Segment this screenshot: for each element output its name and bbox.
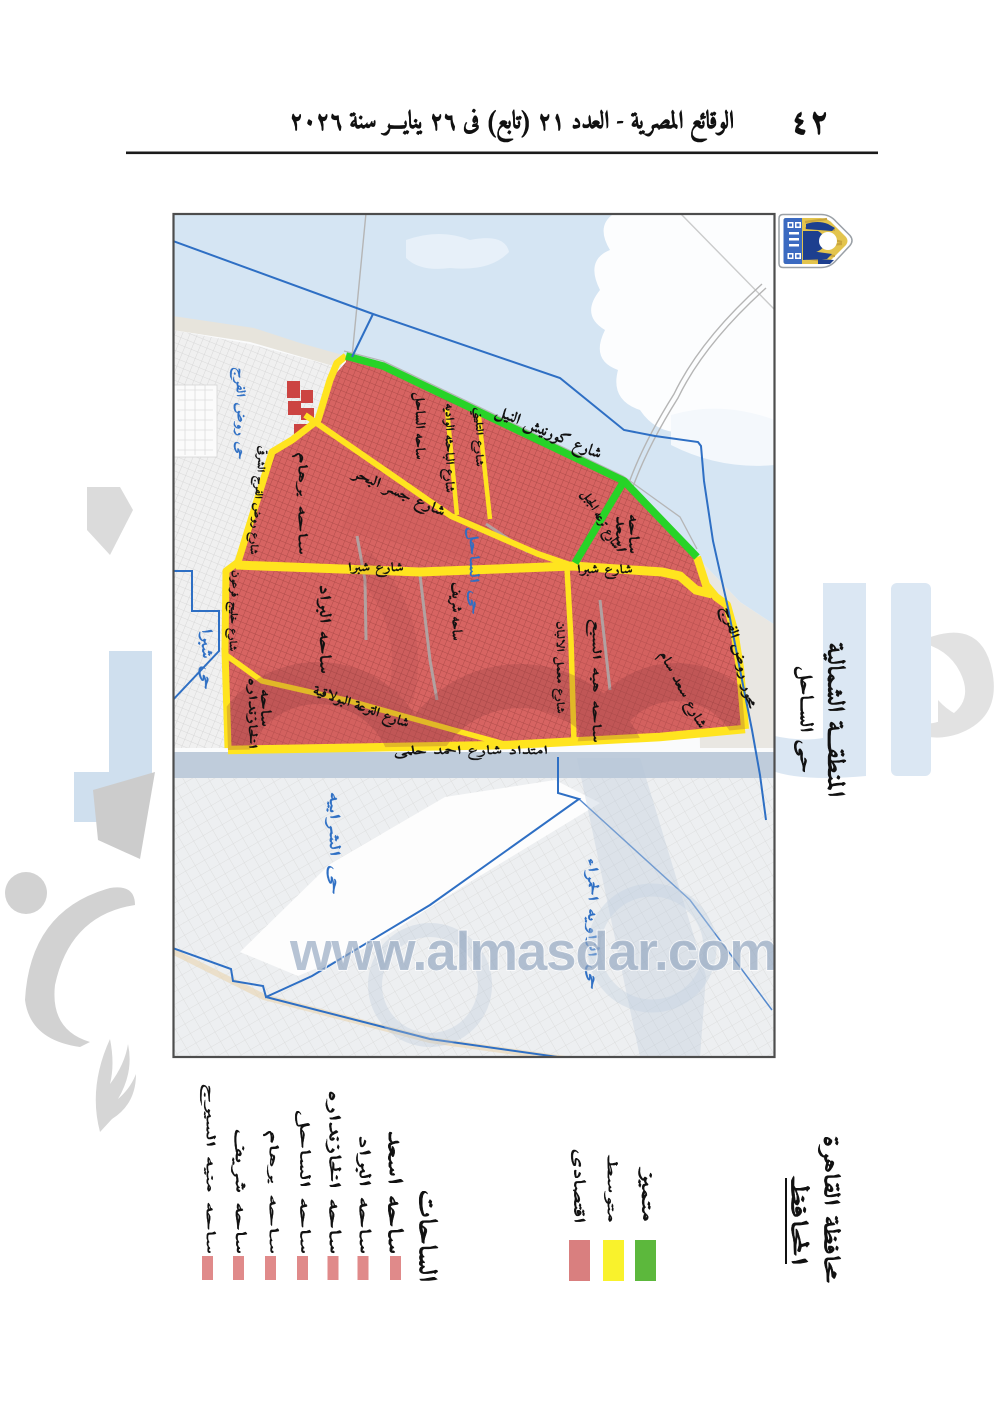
svg-text:www.almasdar.com: www.almasdar.com [289,920,778,982]
